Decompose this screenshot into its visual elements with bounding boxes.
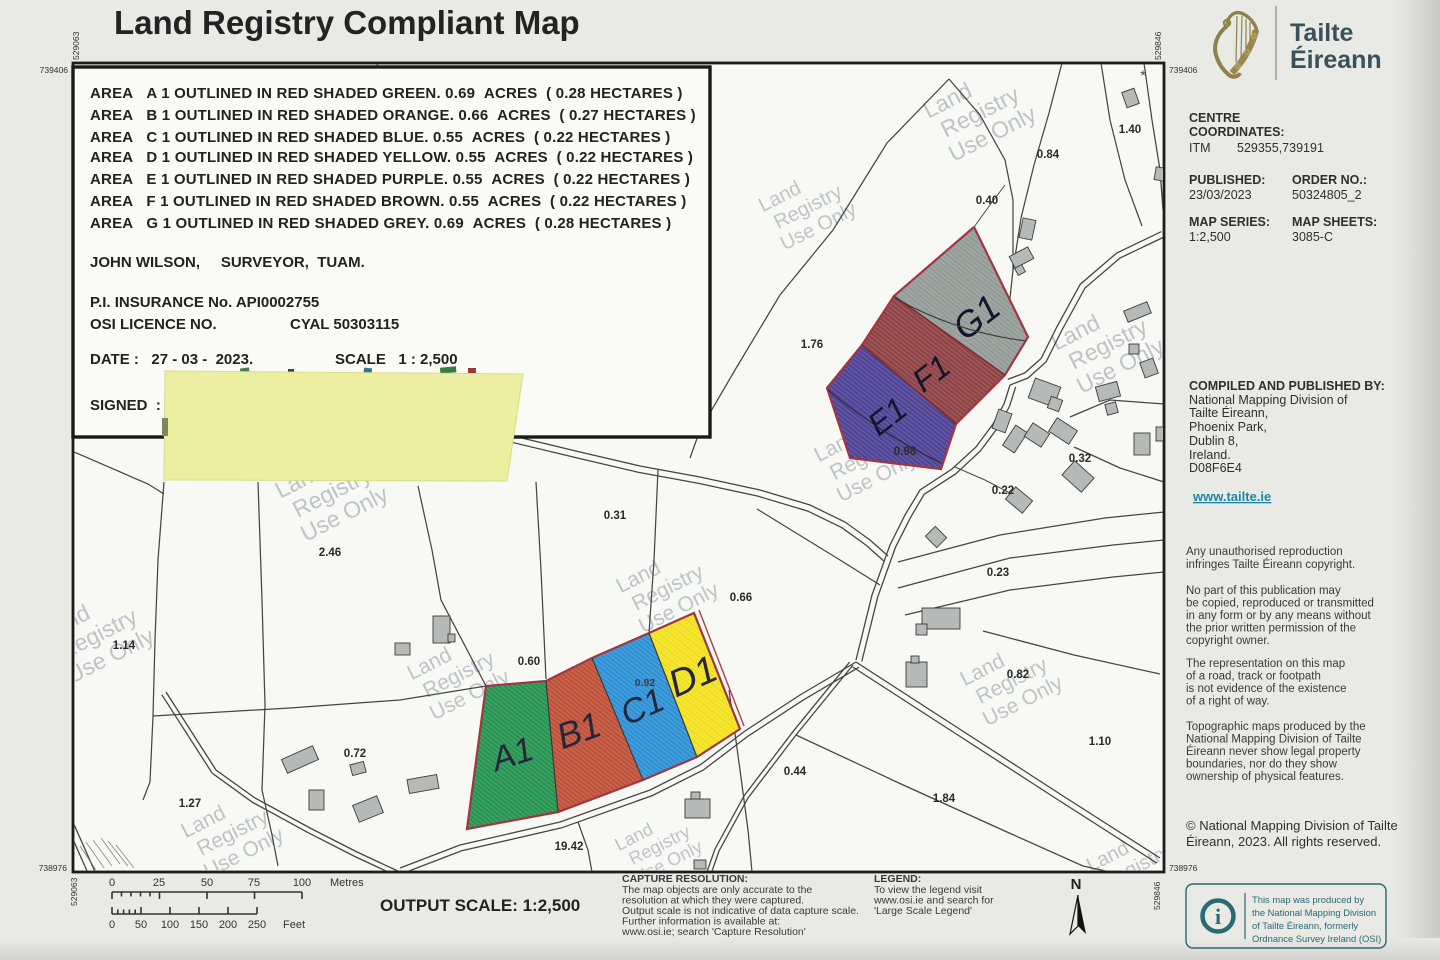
svg-text:PUBLISHED:: PUBLISHED: (1189, 173, 1265, 187)
svg-text:1.14: 1.14 (113, 640, 136, 652)
svg-text:of a road, track or footpath: of a road, track or footpath (1186, 671, 1321, 683)
svg-text:COORDINATES:: COORDINATES: (1189, 125, 1285, 139)
svg-text:25: 25 (153, 877, 165, 889)
svg-text:National Mapping Division of T: National Mapping Division of Tailte (1186, 734, 1362, 746)
svg-text:200: 200 (219, 919, 237, 931)
svg-text:www.osi.ie; search 'Capture Re: www.osi.ie; search 'Capture Resolution' (621, 926, 806, 938)
svg-text:of Tailte Éireann, formerly: of Tailte Éireann, formerly (1252, 920, 1358, 931)
svg-text:COMPILED AND PUBLISHED BY:: COMPILED AND PUBLISHED BY: (1189, 379, 1385, 393)
svg-text:P.I. INSURANCE No. API0002755: P.I. INSURANCE No. API0002755 (90, 294, 319, 311)
svg-text:D08F6E4: D08F6E4 (1189, 461, 1242, 475)
svg-text:ownership of physical features: ownership of physical features. (1186, 771, 1344, 783)
svg-text:AREA E 1 OUTLINED IN RED SHA: AREA E 1 OUTLINED IN RED SHADED PURPLE. … (90, 171, 690, 188)
svg-text:3085-C: 3085-C (1292, 230, 1333, 244)
svg-text:AREA F 1 OUTLINED IN RED SHA: AREA F 1 OUTLINED IN RED SHADED BROWN. 0… (90, 193, 687, 210)
svg-text:infringes Tailte Éireann copyr: infringes Tailte Éireann copyright. (1186, 558, 1355, 571)
svg-text:0: 0 (109, 877, 115, 889)
svg-text:0.66: 0.66 (730, 592, 752, 604)
svg-text:Metres: Metres (330, 877, 364, 889)
svg-text:1:2,500: 1:2,500 (1189, 230, 1231, 244)
svg-text:Any unauthorised reproduction: Any unauthorised reproduction (1186, 546, 1343, 558)
svg-text:0.44: 0.44 (784, 766, 807, 778)
svg-text:copyright owner.: copyright owner. (1186, 635, 1270, 647)
svg-text:i: i (1215, 904, 1221, 929)
svg-text:75: 75 (248, 877, 260, 889)
svg-text:529846: 529846 (1152, 881, 1162, 910)
svg-text:Feet: Feet (283, 919, 305, 931)
svg-text:SIGNED :: SIGNED : (90, 397, 161, 414)
svg-text:CENTRE: CENTRE (1189, 111, 1240, 125)
svg-text:529846: 529846 (1153, 31, 1163, 60)
svg-text:0.31: 0.31 (604, 510, 627, 522)
svg-text:is not evidence of the existen: is not evidence of the existence (1186, 683, 1346, 695)
svg-text:'Large Scale Legend': 'Large Scale Legend' (874, 905, 972, 917)
svg-text:50: 50 (201, 877, 213, 889)
svg-text:of a right of way.: of a right of way. (1186, 696, 1270, 708)
svg-text:250: 250 (248, 919, 266, 931)
svg-text:1.76: 1.76 (801, 339, 823, 351)
svg-text:AREA G 1 OUTLINED IN RED SHA: AREA G 1 OUTLINED IN RED SHADED GREY. 0.… (90, 215, 671, 232)
svg-text:739406: 739406 (40, 65, 69, 75)
svg-text:Ireland.: Ireland. (1189, 448, 1231, 462)
svg-text:50324805_2: 50324805_2 (1292, 188, 1362, 202)
svg-text:150: 150 (190, 919, 208, 931)
svg-text:National Mapping Division of: National Mapping Division of (1189, 393, 1348, 407)
svg-text:the National Mapping Division: the National Mapping Division (1252, 907, 1376, 918)
svg-text:The representation on this map: The representation on this map (1186, 658, 1345, 670)
svg-text:529063: 529063 (69, 877, 79, 906)
svg-text:Land Registry Compliant Map: Land Registry Compliant Map (114, 4, 580, 41)
svg-text:boundaries, nor do they show: boundaries, nor do they show (1186, 759, 1338, 771)
svg-text:JOHN WILSON, SURVEYOR, TU: JOHN WILSON, SURVEYOR, TUAM. (90, 254, 365, 271)
svg-text:738976: 738976 (1169, 863, 1198, 873)
svg-text:1.10: 1.10 (1089, 736, 1111, 748)
svg-text:AREA A 1 OUTLINED IN RED SHA: AREA A 1 OUTLINED IN RED SHADED GREEN. 0… (90, 85, 683, 102)
svg-text:19.42: 19.42 (555, 841, 584, 853)
svg-text:Éireann, 2023. All rights rese: Éireann, 2023. All rights reserved. (1186, 834, 1381, 849)
svg-text:0.98: 0.98 (894, 446, 917, 458)
svg-text:AREA C 1 OUTLINED IN RED SHA: AREA C 1 OUTLINED IN RED SHADED BLUE. 0.… (90, 129, 670, 146)
svg-text:2.46: 2.46 (319, 547, 341, 559)
svg-text:Topographic maps produced by t: Topographic maps produced by the (1186, 721, 1366, 733)
svg-text:AREA B 1 OUTLINED IN RED SHA: AREA B 1 OUTLINED IN RED SHADED ORANGE. … (90, 107, 696, 124)
svg-text:0.82: 0.82 (1007, 669, 1029, 681)
svg-text:MAP SHEETS:: MAP SHEETS: (1292, 215, 1377, 229)
svg-text:*: * (1140, 67, 1146, 83)
svg-text:1.27: 1.27 (179, 798, 201, 810)
svg-text:Éireann never show legal prope: Éireann never show legal property (1186, 745, 1361, 758)
svg-text:www.tailte.ie: www.tailte.ie (1192, 489, 1271, 504)
svg-text:0.60: 0.60 (518, 656, 540, 668)
svg-text:100: 100 (161, 919, 179, 931)
svg-text:Tailte: Tailte (1290, 19, 1354, 47)
svg-text:0.72: 0.72 (344, 748, 366, 760)
svg-text:Ordnance Survey Ireland (OSI): Ordnance Survey Ireland (OSI) (1252, 933, 1381, 944)
svg-text:be copied, reproduced or trans: be copied, reproduced or transmitted (1186, 598, 1374, 610)
svg-text:738976: 738976 (39, 863, 68, 873)
svg-text:AREA D 1 OUTLINED IN RED SHA: AREA D 1 OUTLINED IN RED SHADED YELLOW. … (90, 149, 693, 166)
svg-text:0.84: 0.84 (1037, 149, 1060, 161)
svg-text:0.23: 0.23 (987, 567, 1009, 579)
svg-text:Tailte Éireann,: Tailte Éireann, (1189, 405, 1268, 420)
svg-text:0.22: 0.22 (992, 485, 1014, 497)
svg-text:© National Mapping Division of: © National Mapping Division of Tailte (1186, 818, 1398, 833)
svg-text:Dublin 8,: Dublin 8, (1189, 434, 1238, 448)
svg-text:50: 50 (135, 919, 147, 931)
svg-text:MAP SERIES:: MAP SERIES: (1189, 215, 1270, 229)
svg-text:100: 100 (293, 877, 311, 889)
svg-text:0.40: 0.40 (976, 195, 998, 207)
svg-text:23/03/2023: 23/03/2023 (1189, 188, 1252, 202)
svg-text:N: N (1071, 876, 1082, 893)
svg-text:Éireann: Éireann (1290, 45, 1382, 74)
svg-text:No part of this publication ma: No part of this publication may (1186, 585, 1341, 597)
svg-text:739406: 739406 (1169, 65, 1198, 75)
svg-text:the prior written permission o: the prior written permission of the (1186, 623, 1356, 635)
svg-text:1.40: 1.40 (1119, 124, 1141, 136)
svg-text:529063: 529063 (71, 31, 81, 60)
svg-text:ORDER NO.:: ORDER NO.: (1292, 173, 1367, 187)
svg-text:0.92: 0.92 (635, 677, 656, 689)
svg-text:0: 0 (109, 919, 115, 931)
svg-text:0.32: 0.32 (1069, 453, 1091, 465)
svg-text:Phoenix Park,: Phoenix Park, (1189, 420, 1267, 434)
svg-text:1.84: 1.84 (933, 793, 956, 805)
svg-text:OUTPUT SCALE: 1:2,500: OUTPUT SCALE: 1:2,500 (380, 896, 580, 915)
svg-text:ITM529355,739191: ITM529355,739191 (1189, 141, 1324, 155)
svg-text:in any form or by any means wi: in any form or by any means without (1186, 610, 1372, 622)
svg-text:This map was produced by: This map was produced by (1252, 894, 1364, 905)
